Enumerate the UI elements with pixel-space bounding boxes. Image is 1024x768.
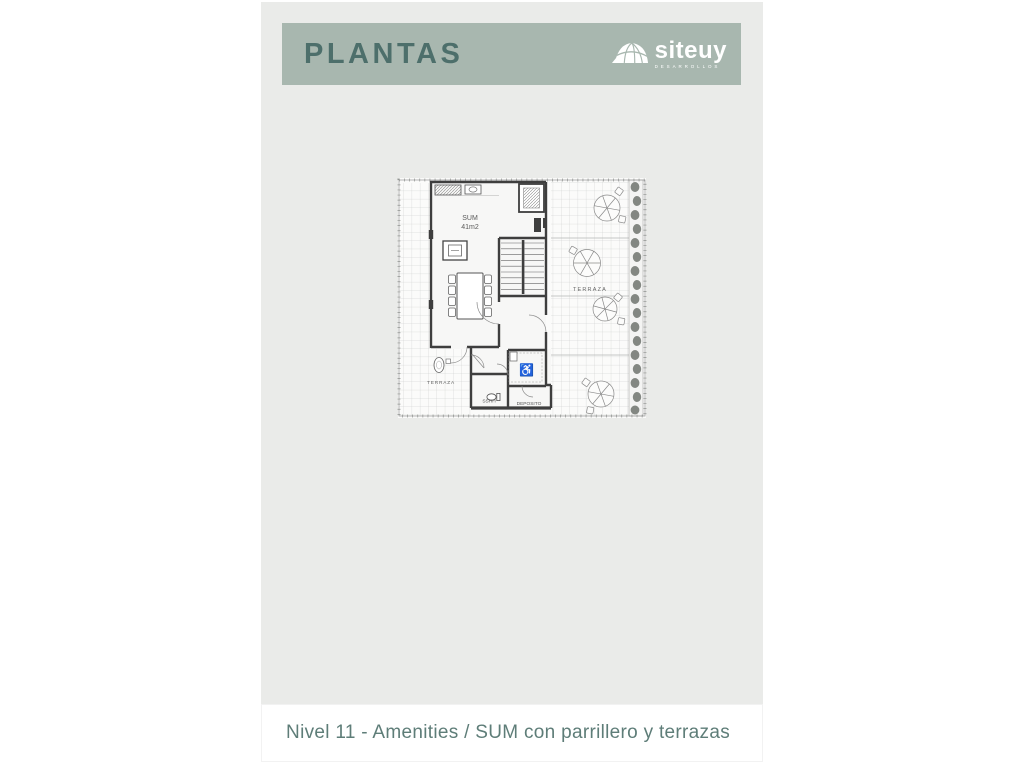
terrace-left-label: TERRAZA [427,380,455,386]
planter-strip [629,180,643,416]
dome-shell-icon [611,39,649,71]
logo-brand: siteuy [655,39,727,63]
sum-area-label: 41m2 [461,224,479,231]
level-caption: Nivel 11 - Amenities / SUM con parriller… [286,722,730,744]
page-title: PLANTAS [304,38,463,71]
storage-label: DEPOSITO [517,401,542,407]
shaft [519,184,544,212]
fireplace [443,241,467,260]
wheelchair-icon: ♿ [519,363,534,377]
floorplan: ♿ [395,174,651,422]
terrace-right-label: TERRAZA [573,287,607,293]
header-bar: PLANTAS siteuy DESARROLLOS [282,23,741,85]
bathroom-label: SSHH [482,399,496,405]
presentation-card: PLANTAS siteuy DESARROLLOS [261,2,763,762]
parrillero [435,185,461,195]
logo-tagline: DESARROLLOS [655,65,727,70]
caption-bar: Nivel 11 - Amenities / SUM con parriller… [261,704,763,762]
floorplan-drawing: ♿ [395,174,651,422]
siteuy-logo: siteuy DESARROLLOS [611,37,727,71]
sum-room-label: SUM [462,215,478,222]
